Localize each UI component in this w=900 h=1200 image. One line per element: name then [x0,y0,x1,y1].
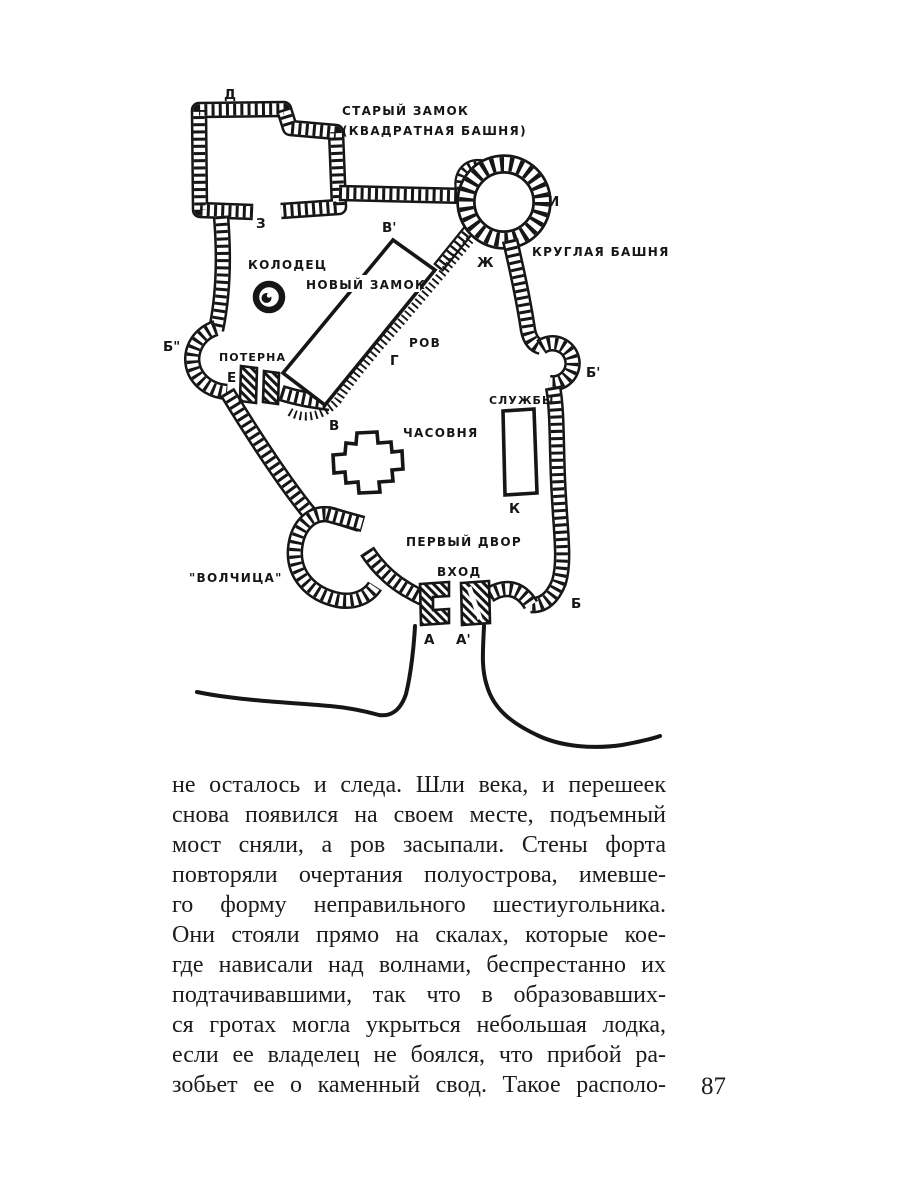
point-label-z: З [256,216,266,232]
well-symbol [256,284,282,310]
point-label-e: Е [227,370,236,386]
point-label-a-prime: А' [456,632,471,648]
point-label-i: И [548,194,559,210]
text-line: Они стояли прямо на скалах, которые кое- [172,920,666,950]
corridor-wall-to-round-tower [339,193,466,196]
text-line: мост сняли, а ров засыпали. Стены форта [172,830,666,860]
label-moat: РОВ [409,336,441,350]
text-line: снова появился на своем месте, подъемный [172,800,666,830]
point-label-k: К [509,501,520,517]
text-line: зобьет ее о каменный свод. Такое располо… [172,1070,666,1100]
label-old-castle-line2: (КВАДРАТНАЯ БАШНЯ) [342,124,527,138]
entrance-gate-piers [420,581,490,625]
page-number: 87 [701,1073,726,1101]
text-line: повторяли очертания полуострова, имевше- [172,860,666,890]
castle-plan-figure: СТАРЫЙ ЗАМОК (КВАДРАТНАЯ БАШНЯ) КРУГЛАЯ … [0,0,900,770]
point-label-v: В [329,418,339,434]
label-chapel: ЧАСОВНЯ [403,426,479,440]
label-old-castle-line1: СТАРЫЙ ЗАМОК [342,103,469,118]
label-wolf-bastion: "ВОЛЧИЦА" [189,571,283,585]
west-wall-long [227,392,316,521]
point-label-a: А [424,632,435,648]
round-tower-ring [466,164,542,240]
text-line: ся гротах могла укрыться небольшая лодка… [172,1010,666,1040]
text-line: подтачивавшими, так что в образовавших- [172,980,666,1010]
label-services: СЛУЖБЫ [489,394,555,407]
services-building [503,409,537,495]
label-round-tower: КРУГЛАЯ БАШНЯ [532,245,670,259]
south-wall-to-b-cusp [489,589,531,605]
point-label-zh: Ж [477,255,494,271]
west-wall-upper [216,216,223,330]
point-label-b: Б [571,596,581,612]
point-label-v-prime: В' [382,220,396,236]
point-label-b-double-prime: Б" [163,339,180,355]
label-new-castle: НОВЫЙ ЗАМОК [306,277,426,292]
text-line: го форму неправильного шестиугольника. [172,890,666,920]
wolf-bastion-walls [295,514,423,601]
point-label-b-prime: Б' [586,365,600,381]
text-line: если ее владелец не боялся, что прибой р… [172,1040,666,1070]
book-page: СТАРЫЙ ЗАМОК (КВАДРАТНАЯ БАШНЯ) КРУГЛАЯ … [0,0,900,1200]
text-line: где нависали над волнами, беспрестанно и… [172,950,666,980]
label-first-courtyard: ПЕРВЫЙ ДВОР [406,534,522,549]
label-postern: ПОТЕРНА [219,351,286,364]
label-entrance: ВХОД [437,565,482,579]
chapel-building [333,432,403,493]
text-line: не осталось и следа. Шли века, и перешее… [172,770,666,800]
point-label-g: Г [390,353,399,369]
body-paragraph: не осталось и следа. Шли века, и перешее… [172,770,666,1100]
b-prime-bastion [541,343,573,383]
postern-gate-piers [240,366,279,404]
point-label-d: Д [224,87,236,103]
old-castle-square-tower-walls [199,109,339,212]
label-well: КОЛОДЕЦ [248,258,327,272]
